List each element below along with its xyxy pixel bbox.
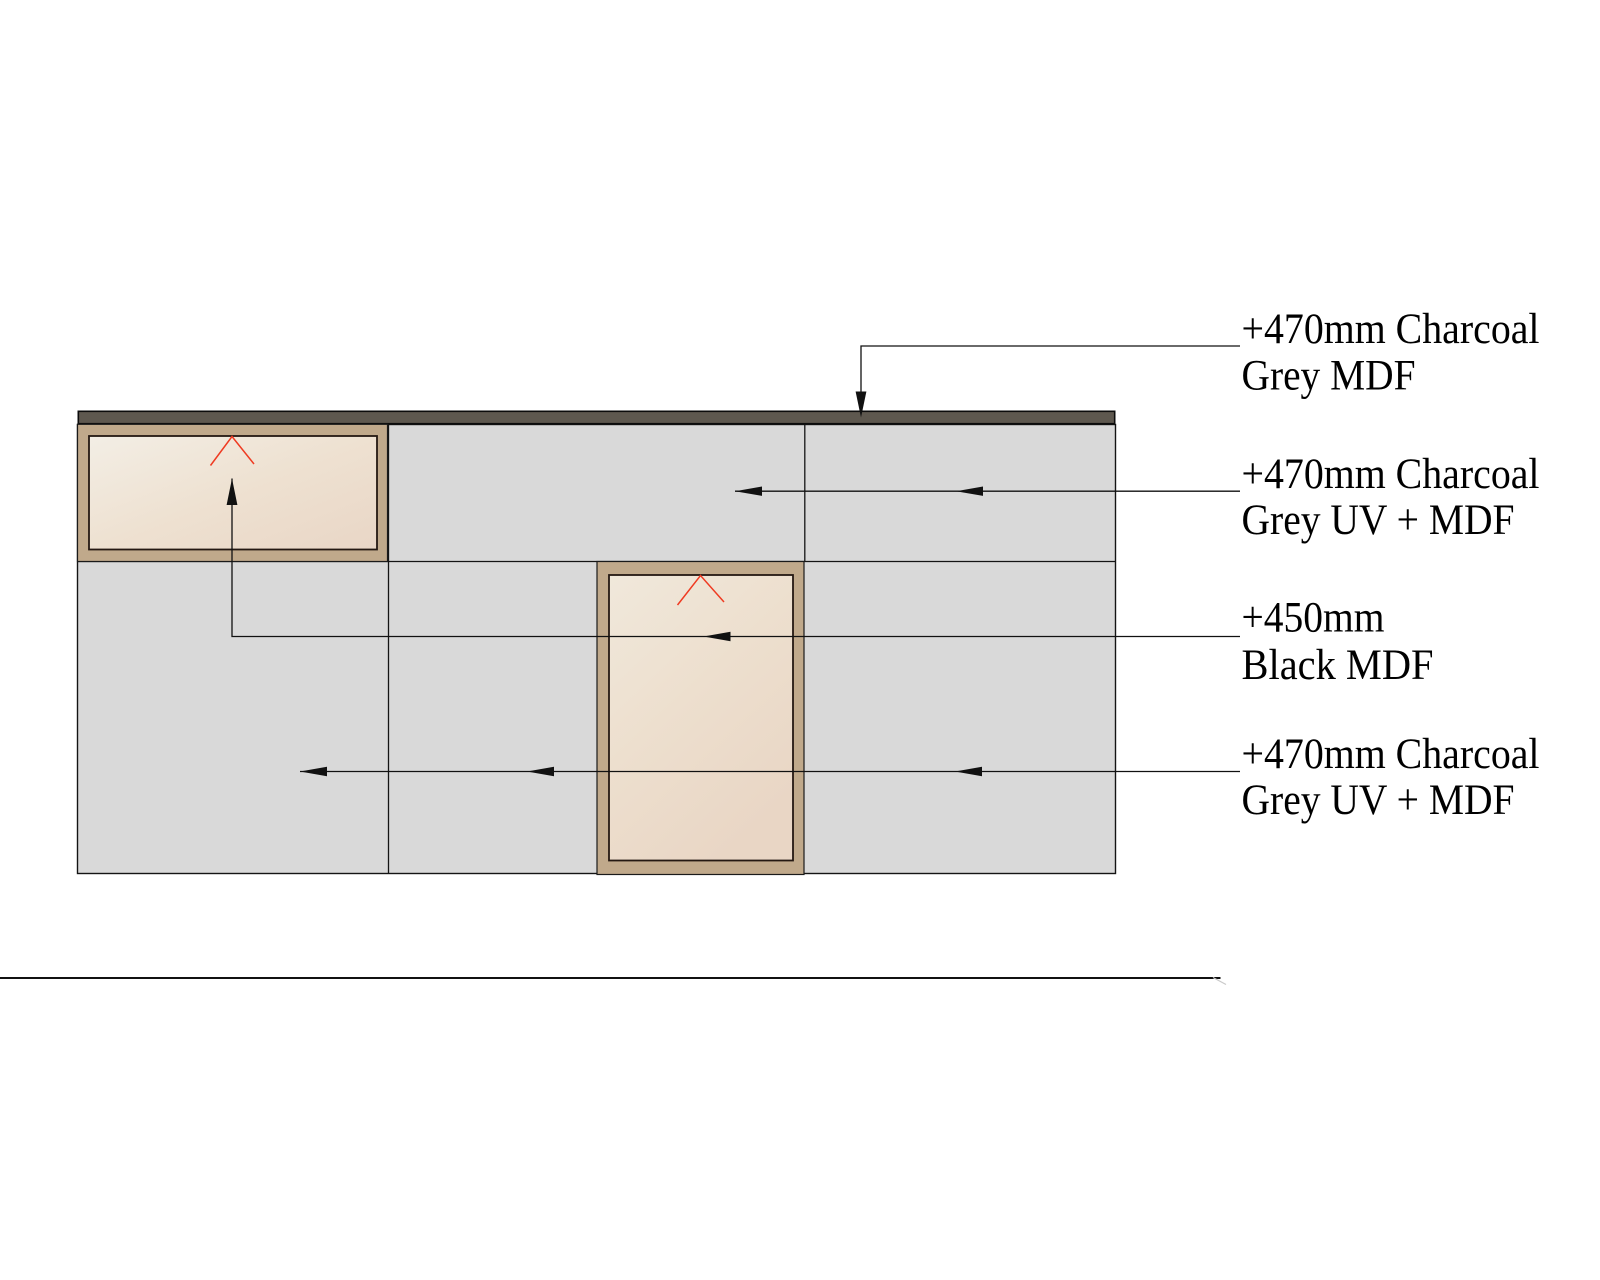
svg-text:+450mm: +450mm [1242, 595, 1385, 642]
svg-text:Grey UV + MDF: Grey UV + MDF [1242, 777, 1515, 824]
svg-text:+470mm Charcoal: +470mm Charcoal [1242, 306, 1540, 353]
svg-text:Black MDF: Black MDF [1242, 642, 1434, 689]
svg-text:+470mm Charcoal: +470mm Charcoal [1242, 451, 1540, 498]
svg-text:+470mm Charcoal: +470mm Charcoal [1242, 731, 1540, 778]
svg-text:Grey MDF: Grey MDF [1242, 353, 1416, 400]
svg-text:Grey UV + MDF: Grey UV + MDF [1242, 497, 1515, 544]
